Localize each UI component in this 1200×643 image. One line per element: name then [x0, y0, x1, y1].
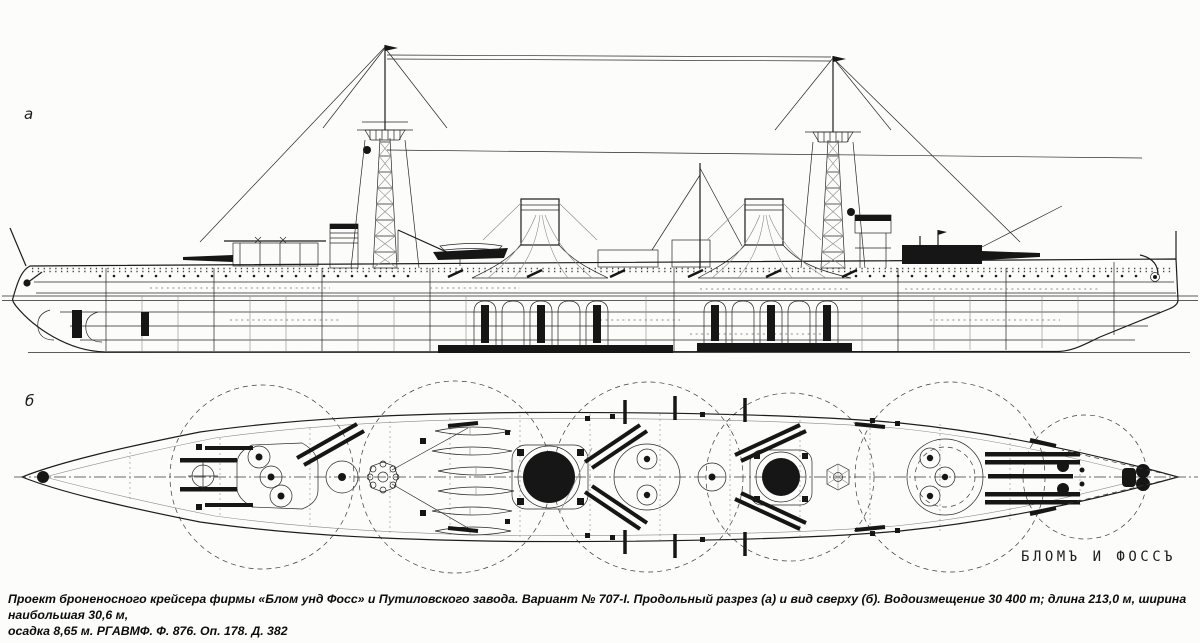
- side-elevation-view: [2, 45, 1198, 353]
- bow-capstan: [37, 471, 49, 483]
- aft-mast: [775, 56, 891, 268]
- scanned-blueprint-page: а б БЛОМЪ И ФОССЪ Проект броненосного кр…: [0, 0, 1200, 643]
- aerial-wires: [200, 47, 1142, 242]
- casemate-guns: [448, 270, 857, 277]
- fore-gun-barrel: [183, 255, 233, 262]
- plan-fore-funnel: [512, 445, 592, 512]
- stern-fittings: [1140, 231, 1176, 282]
- conning-tower: [330, 224, 358, 268]
- figure-caption: Проект броненосного крейсера фирмы «Блом…: [8, 591, 1194, 639]
- plan-stern-gear: [1057, 450, 1178, 505]
- boiler-arches: [474, 301, 838, 346]
- portholes: [99, 275, 1138, 278]
- fore-mast: [323, 45, 447, 268]
- plan-view: [14, 381, 1198, 573]
- plan-fore-mast: [367, 428, 468, 528]
- fighting-top: [365, 130, 405, 140]
- builder-stamp: БЛОМЪ И ФОССЪ: [1021, 549, 1176, 565]
- caption-line-1: Проект броненосного крейсера фирмы «Блом…: [8, 591, 1194, 623]
- double-bottom-strip: [697, 343, 852, 352]
- plan-fore-turret: [180, 424, 364, 510]
- view-label-a: а: [24, 105, 33, 123]
- view-label-b: б: [25, 392, 34, 410]
- midship-deckhouses: [598, 163, 742, 268]
- aft-funnel: [698, 199, 851, 278]
- plan-boats: [432, 427, 514, 535]
- blueprint-canvas: а б БЛОМЪ И ФОССЪ: [0, 0, 1200, 643]
- boat-crane: [398, 230, 460, 266]
- bow-fittings: [10, 228, 102, 342]
- aft-turret: [902, 206, 1062, 264]
- fore-bridge: [183, 224, 358, 268]
- double-bottom-strip: [438, 345, 673, 353]
- ships-boats: [433, 244, 508, 261]
- fore-funnel: [472, 199, 608, 278]
- caption-line-2: осадка 8,65 м. РГАВМФ. Ф. 876. Оп. 178. …: [8, 623, 1194, 639]
- plan-aft-turret: [907, 439, 1080, 515]
